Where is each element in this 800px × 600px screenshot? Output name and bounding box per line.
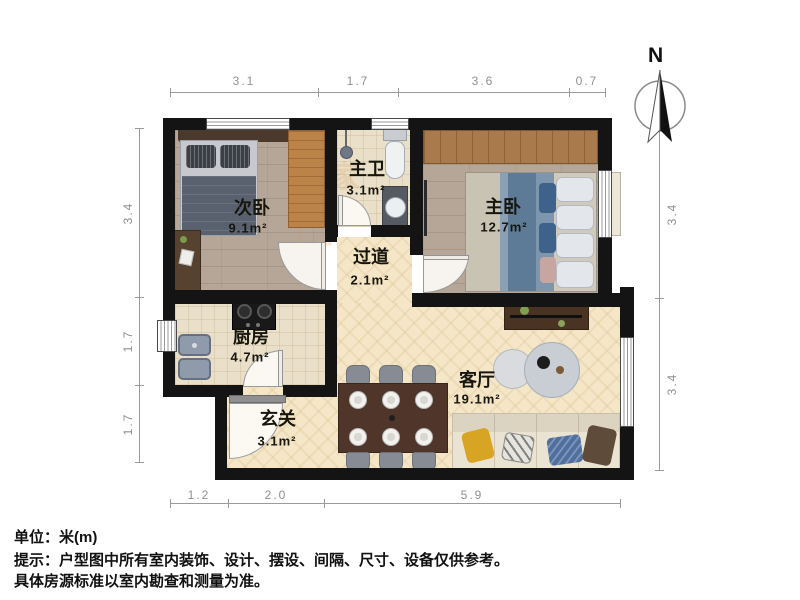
dim-right-1: 3.4 <box>665 197 679 231</box>
dim-top-1: 3.1 <box>227 74 261 88</box>
dim-line-top <box>170 92 605 93</box>
master-wardrobe <box>423 130 598 164</box>
dim-left-3: 1.7 <box>121 407 135 441</box>
bed2-pillow-left <box>186 145 216 168</box>
master-bath-area: 3.1m² <box>347 183 386 198</box>
master-pillow-2 <box>556 205 594 230</box>
wall-bedroom2-bottom <box>163 290 337 304</box>
dim-top-2: 1.7 <box>341 74 375 88</box>
bath-door-leaf <box>338 195 343 226</box>
wall-master-right-lower <box>598 236 612 293</box>
dim-tick <box>228 499 229 508</box>
shower-stem <box>345 130 347 147</box>
dim-tick <box>135 385 144 386</box>
compass-north-label: N <box>648 44 663 68</box>
dim-top-3: 3.6 <box>466 74 500 88</box>
dim-tick <box>324 499 325 508</box>
kitchen-faucet <box>192 343 197 348</box>
wall-kitchen-right <box>325 290 337 397</box>
coffee-table-deco <box>556 366 564 374</box>
wall-bath-master <box>410 118 423 255</box>
dim-top-4: 0.7 <box>570 74 604 88</box>
dining-chair-top-2 <box>379 365 403 384</box>
wall-bath-bottom-left <box>325 225 338 237</box>
plate-3 <box>415 391 433 409</box>
entry-area: 3.1m² <box>258 434 297 449</box>
kitchen-label: 厨房 <box>233 323 269 349</box>
kitchen-sink-basin-2 <box>178 358 211 380</box>
dining-chair-top-3 <box>412 365 436 384</box>
tip-line-2: 具体房源标准以室内勘查和测量为准。 <box>14 570 269 591</box>
dim-tick <box>605 88 606 97</box>
entry-label: 玄关 <box>260 405 296 431</box>
master-door-leaf <box>423 255 469 260</box>
kitchen-window <box>157 320 177 352</box>
floorplan-canvas: 家 <box>0 0 800 600</box>
sofa-pillow-blue <box>546 434 584 466</box>
master-bay-sill <box>611 172 621 236</box>
bath-window <box>371 118 409 130</box>
plate-6 <box>415 428 433 446</box>
wall-entry-left <box>215 390 227 480</box>
dim-tick <box>135 297 144 298</box>
dim-bottom-1: 1.2 <box>182 488 216 502</box>
dim-tick <box>620 499 621 508</box>
tip-line-1: 提示：户型图中所有室内装饰、设计、摆设、间隔、尺寸、设备仅供参考。 <box>14 549 509 570</box>
dim-tick <box>135 128 144 129</box>
wall-bath-bottom-right <box>371 225 412 237</box>
plate-5 <box>382 428 400 446</box>
bedroom2-door-leaf <box>321 242 326 290</box>
master-cushion-blue-2 <box>539 223 556 253</box>
wardrobe2 <box>288 130 325 228</box>
dim-tick <box>135 462 144 463</box>
master-pillow-3 <box>556 233 594 258</box>
dim-tick <box>655 470 664 471</box>
entry-door-leaf <box>229 395 286 403</box>
kitchen-area: 4.7m² <box>231 350 270 365</box>
dim-line-right <box>659 130 660 470</box>
bedroom2-window <box>206 118 290 130</box>
unit-note: 单位：米(m) <box>14 526 97 547</box>
dim-line-left <box>139 128 140 462</box>
dim-line-bottom <box>170 503 620 504</box>
plate-2 <box>382 391 400 409</box>
master-pillow-1 <box>556 177 594 202</box>
compass-icon <box>626 66 696 156</box>
plate-1 <box>349 391 367 409</box>
toilet-tank <box>383 129 407 141</box>
tv-plant-1 <box>520 306 529 315</box>
second-bedroom-area: 9.1m² <box>229 221 268 236</box>
dim-left-2: 1.7 <box>121 324 135 358</box>
hallway-area: 2.1m² <box>351 273 390 288</box>
dim-left-1: 3.4 <box>121 196 135 230</box>
table-deco-dot <box>389 415 395 421</box>
toilet-bowl <box>385 141 405 179</box>
wall-master-bottom <box>412 293 634 307</box>
wall-bedroom2-bath <box>325 118 337 242</box>
wall-master-right-upper <box>598 118 612 172</box>
master-tv-line <box>424 180 427 236</box>
stove-burner-2 <box>257 304 272 319</box>
tv-bar <box>510 315 582 318</box>
master-cushion-pink <box>540 257 556 283</box>
coffee-table-large <box>524 342 580 398</box>
master-bay-window <box>598 170 612 238</box>
dim-tick <box>318 88 319 97</box>
dim-tick <box>170 499 171 508</box>
sofa-pillow-print <box>501 432 535 465</box>
dim-tick <box>170 88 171 97</box>
master-pillow-4 <box>556 261 594 288</box>
desk2-plant <box>180 236 187 243</box>
dim-tick <box>569 88 570 97</box>
master-bedroom-area: 12.7m² <box>480 220 527 235</box>
dim-right-2: 3.4 <box>665 367 679 401</box>
hallway-label: 过道 <box>353 243 389 269</box>
dim-tick <box>398 88 399 97</box>
master-bath-label: 主卫 <box>349 155 385 181</box>
wall-bottom <box>215 468 634 480</box>
dim-bottom-2: 2.0 <box>259 488 293 502</box>
dim-bottom-3: 5.9 <box>455 488 489 502</box>
dim-tick <box>655 298 664 299</box>
second-bedroom-label: 次卧 <box>234 194 270 220</box>
bath-sink <box>385 197 406 218</box>
coffee-table-bowl <box>537 356 550 369</box>
plate-4 <box>349 428 367 446</box>
master-cushion-blue-1 <box>539 183 556 213</box>
dining-chair-top-1 <box>346 365 370 384</box>
tv-plant-2 <box>558 320 565 327</box>
kitchen-door-leaf <box>278 350 283 387</box>
living-window <box>620 337 634 427</box>
stove-burner-1 <box>237 304 252 319</box>
living-room-label: 客厅 <box>459 366 495 392</box>
living-room-area: 19.1m² <box>453 392 500 407</box>
master-bedroom-label: 主卧 <box>485 193 521 219</box>
bed2-pillow-right <box>220 145 250 168</box>
